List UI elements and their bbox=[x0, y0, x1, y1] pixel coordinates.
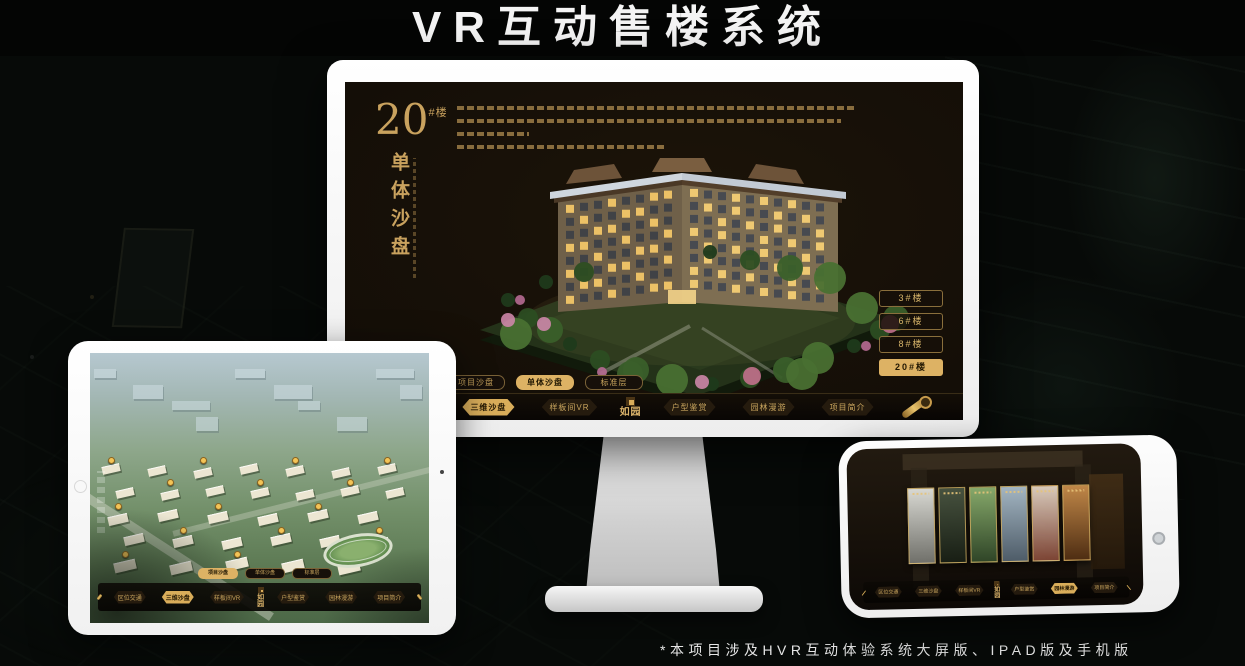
view-tab[interactable]: 项目沙盘 bbox=[198, 568, 238, 579]
nav-item[interactable]: 项目简介 bbox=[370, 591, 408, 604]
nav-item[interactable]: 区位交通 bbox=[111, 591, 149, 604]
view-tab[interactable]: 单体沙盘 bbox=[245, 568, 285, 579]
poster-canvas: VR互动售楼系统 20#楼 单体沙盘 bbox=[0, 0, 1245, 666]
app-logo: 如园 bbox=[620, 397, 642, 418]
app-logo: 如园 bbox=[257, 587, 264, 608]
tablet-screen: 项目沙盘 单体沙盘 标准层 区位交通 三维沙盘 样板间VR 如园 户型鉴赏 园林… bbox=[90, 353, 429, 623]
building-3d-render[interactable] bbox=[450, 122, 920, 412]
nav-item[interactable]: 项目简介 bbox=[817, 399, 879, 416]
tablet-view-tabs: 项目沙盘 单体沙盘 标准层 bbox=[198, 568, 332, 579]
scroll-handle-icon[interactable] bbox=[1127, 584, 1132, 589]
monitor-stand-base bbox=[545, 586, 763, 612]
scroll-handle-icon[interactable] bbox=[862, 590, 866, 595]
nav-item[interactable]: 样板间VR bbox=[952, 584, 986, 596]
scene-panel-wood-interior[interactable] bbox=[1062, 484, 1091, 561]
seal-icon bbox=[626, 397, 635, 406]
nav-item[interactable]: 园林漫游 bbox=[322, 591, 360, 604]
floor-button[interactable]: 3#楼 bbox=[879, 290, 943, 307]
scene-panel-garden-path[interactable] bbox=[969, 486, 998, 563]
floor-button[interactable]: 6#楼 bbox=[879, 313, 943, 330]
phone-screen: 区位交通 三维沙盘 样板间VR 如园 户型鉴赏 园林漫游 项目简介 bbox=[846, 443, 1143, 610]
phone-device: 区位交通 三维沙盘 样板间VR 如园 户型鉴赏 园林漫游 项目简介 bbox=[838, 434, 1180, 618]
nav-item[interactable]: 园林漫游 bbox=[738, 399, 800, 416]
phone-camera bbox=[1152, 532, 1165, 545]
nav-item[interactable]: 户型鉴赏 bbox=[659, 399, 721, 416]
nav-item[interactable]: 三维沙盘 bbox=[159, 591, 197, 604]
nav-item[interactable]: 项目简介 bbox=[1088, 582, 1120, 594]
floor-button[interactable]: 20#楼 bbox=[879, 359, 943, 376]
building-number: 20 bbox=[375, 95, 428, 144]
warm-doorway bbox=[1089, 474, 1125, 570]
scroll-handle-icon[interactable] bbox=[96, 594, 102, 600]
entrance-lintel bbox=[902, 450, 1082, 470]
app-logo-text: 如园 bbox=[620, 408, 642, 418]
footnote-text: *本项目涉及HVR互动体验系统大屏版、IPAD版及手机版 bbox=[660, 640, 1133, 660]
seal-icon bbox=[258, 587, 264, 593]
scene-panel-building-facade[interactable] bbox=[1000, 486, 1029, 563]
nav-item[interactable]: 三维沙盘 bbox=[457, 399, 519, 416]
view-tab[interactable]: 标准层 bbox=[292, 568, 332, 579]
tablet-home-button[interactable] bbox=[74, 480, 87, 493]
scene-panel-ink-courtyard[interactable] bbox=[907, 488, 936, 565]
nav-item[interactable]: 样板间VR bbox=[536, 399, 602, 416]
nav-item[interactable]: 户型鉴赏 bbox=[1008, 583, 1040, 595]
view-tab[interactable]: 标准层 bbox=[585, 375, 643, 390]
nav-item[interactable]: 三维沙盘 bbox=[912, 585, 944, 597]
tablet-camera-dot bbox=[440, 470, 444, 474]
app-logo-text: 如园 bbox=[257, 594, 264, 608]
app-logo: 如园 bbox=[994, 581, 1000, 599]
monitor-stand-neck bbox=[586, 437, 720, 593]
nav-item[interactable]: 区位交通 bbox=[872, 586, 904, 598]
view-tabs: 项目沙盘 单体沙盘 标准层 bbox=[447, 375, 643, 390]
nav-item[interactable]: 园林漫游 bbox=[1048, 583, 1080, 595]
vertical-subtitle-decor bbox=[413, 158, 416, 278]
scene-panel-autumn-courtyard[interactable] bbox=[1031, 485, 1060, 562]
scene-panel-dark-stairs[interactable] bbox=[938, 487, 967, 564]
building-headline: 20#楼 bbox=[375, 98, 448, 142]
view-tab[interactable]: 单体沙盘 bbox=[516, 375, 574, 390]
vertical-section-title: 单体沙盘 bbox=[385, 152, 412, 264]
phone-navbar: 区位交通 三维沙盘 样板间VR 如园 户型鉴赏 园林漫游 项目简介 bbox=[863, 576, 1129, 603]
nav-item[interactable]: 样板间VR bbox=[207, 591, 247, 604]
seal-icon bbox=[995, 581, 1000, 586]
floor-selector: 3#楼 6#楼 8#楼 20#楼 bbox=[879, 290, 943, 376]
app-logo-text: 如园 bbox=[994, 587, 1000, 599]
text-line bbox=[457, 106, 857, 110]
tablet-navbar: 区位交通 三维沙盘 样板间VR 如园 户型鉴赏 园林漫游 项目简介 bbox=[98, 583, 421, 611]
page-title: VR互动售楼系统 bbox=[0, 0, 1245, 56]
floor-button[interactable]: 8#楼 bbox=[879, 336, 943, 353]
scroll-icon[interactable] bbox=[900, 395, 928, 418]
nav-item[interactable]: 户型鉴赏 bbox=[274, 591, 312, 604]
background-aerial-texture bbox=[945, 40, 1245, 500]
scene-panels-row bbox=[907, 484, 1091, 564]
background-sign-board bbox=[112, 228, 195, 328]
building-number-suffix: #楼 bbox=[428, 107, 447, 119]
